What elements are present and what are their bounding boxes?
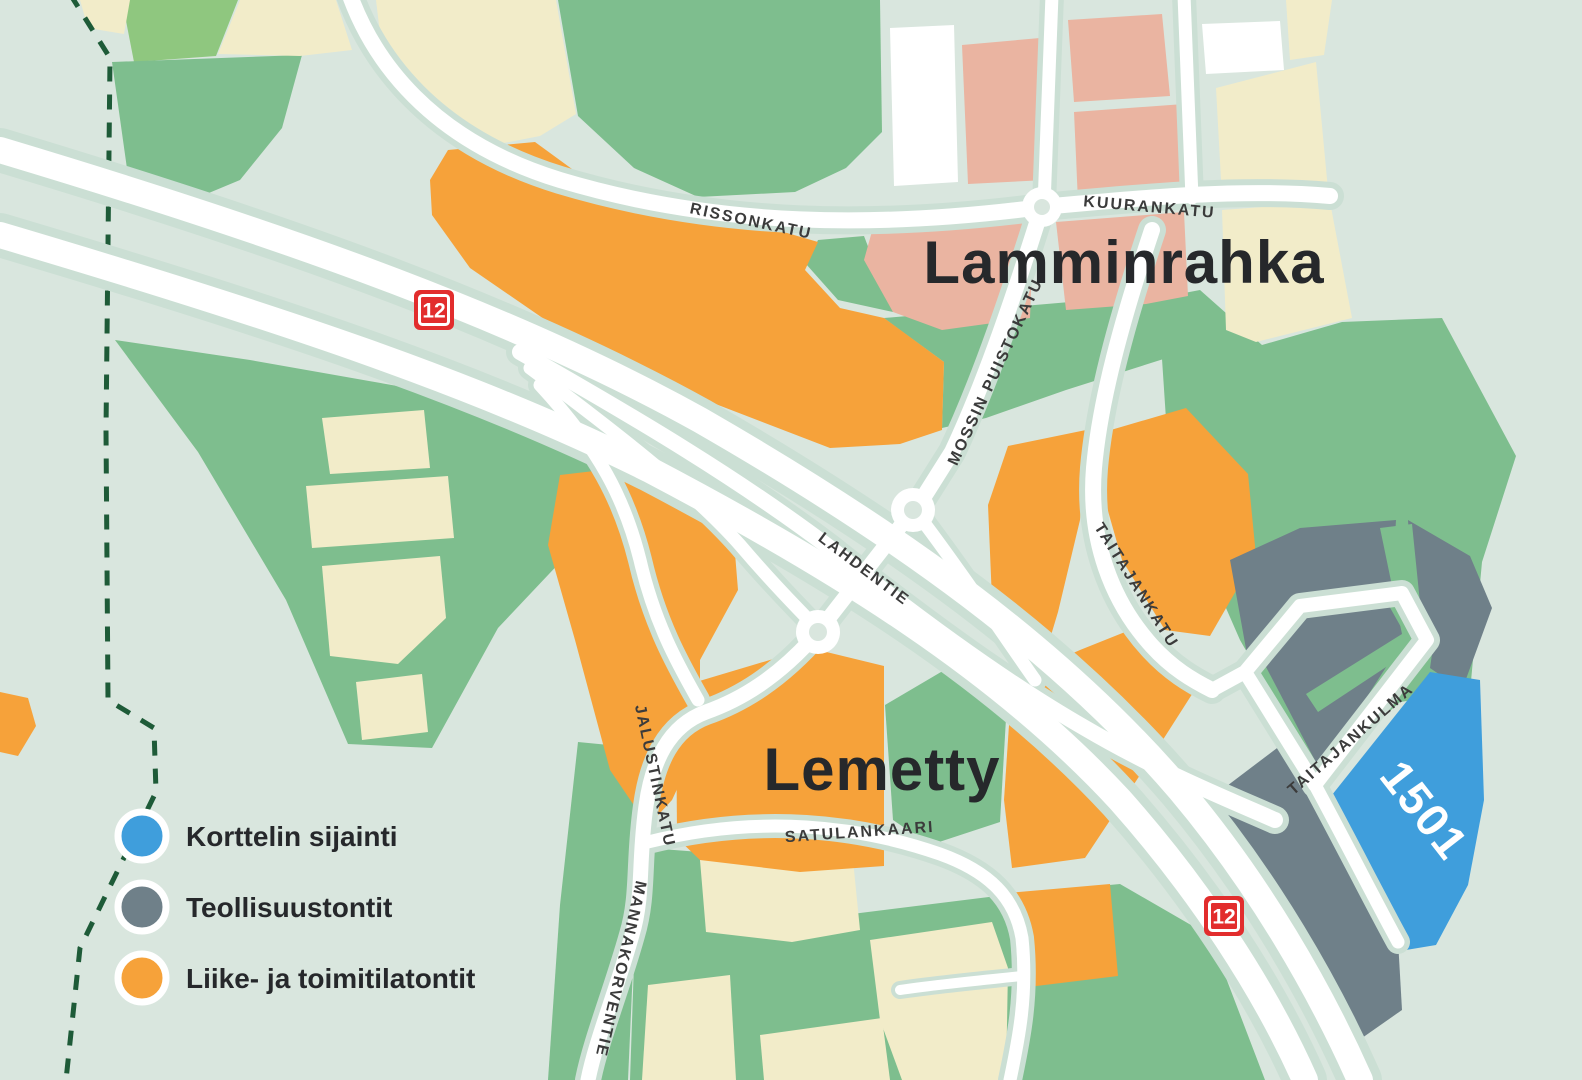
lamminrahka-block-n1 xyxy=(962,38,1046,184)
block-midleft-1 xyxy=(322,410,430,474)
white-block-top xyxy=(890,25,958,186)
block-south-2 xyxy=(642,975,736,1080)
legend-label: Teollisuustontit xyxy=(186,892,392,923)
legend-label: Liike- ja toimitilatontit xyxy=(186,963,475,994)
route-badge-number: 12 xyxy=(1212,906,1235,929)
lamminrahka-block-n2 xyxy=(1068,14,1170,102)
route-12-badge-east: 12 xyxy=(1204,896,1244,936)
district-label-lamminrahka: Lamminrahka xyxy=(923,229,1324,296)
legend-swatch-orange xyxy=(118,954,166,1002)
district-label-lemetty: Lemetty xyxy=(763,736,1000,803)
white-block-topright xyxy=(1202,21,1284,74)
route-12-badge-west: 12 xyxy=(414,290,454,330)
legend-label: Korttelin sijainti xyxy=(186,821,398,852)
block-midleft-2 xyxy=(306,476,454,548)
roundabout-north-island xyxy=(904,501,922,519)
legend-swatch-gray xyxy=(118,883,166,931)
map-stage: 12 12 RISSONKATU KUURANKATU MOSSIN PUIST… xyxy=(0,0,1582,1080)
roundabout-kuurankatu-island xyxy=(1034,199,1050,215)
roundabout-south-island xyxy=(809,623,827,641)
road-north-spur xyxy=(1184,0,1192,198)
legend-swatch-blue xyxy=(118,812,166,860)
route-badge-number: 12 xyxy=(422,300,445,323)
block-topleft-a xyxy=(218,0,352,56)
block-midleft-4 xyxy=(356,674,428,740)
road-mossin-north xyxy=(1044,0,1052,205)
map-canvas: 12 12 RISSONKATU KUURANKATU MOSSIN PUIST… xyxy=(0,0,1582,1080)
